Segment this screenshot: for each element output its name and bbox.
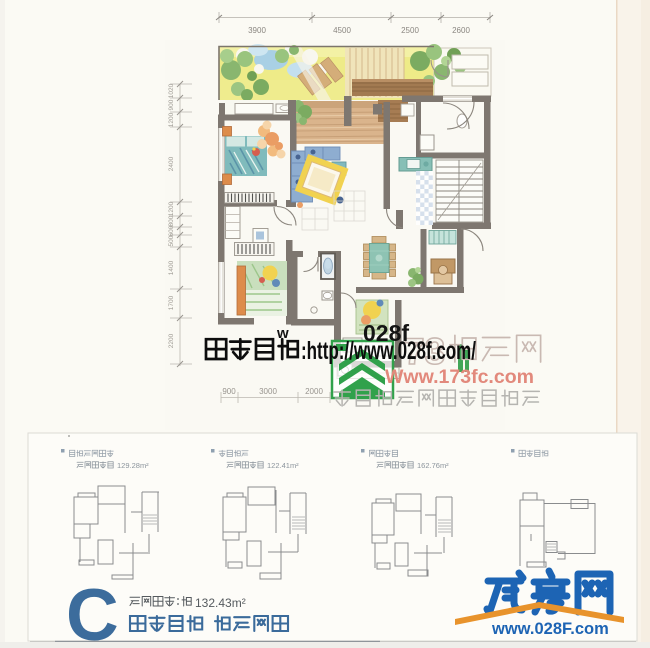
svg-text:4500: 4500 (333, 26, 351, 35)
svg-text:129.28m²: 129.28m² (117, 461, 149, 470)
svg-text:2500: 2500 (401, 26, 419, 35)
svg-text:2600: 2600 (452, 26, 470, 35)
svg-text:C: C (66, 575, 119, 648)
svg-text:Www.173fc.com: Www.173fc.com (385, 367, 534, 388)
svg-text:www.028F.com: www.028F.com (491, 620, 609, 638)
svg-text:122.41m²: 122.41m² (267, 461, 299, 470)
svg-text::http://www.028f.com/: :http://www.028f.com/ (301, 337, 476, 365)
svg-text:3900: 3900 (248, 26, 266, 35)
svg-text:162.76m²: 162.76m² (417, 461, 449, 470)
svg-text:132.43m²: 132.43m² (195, 596, 246, 610)
